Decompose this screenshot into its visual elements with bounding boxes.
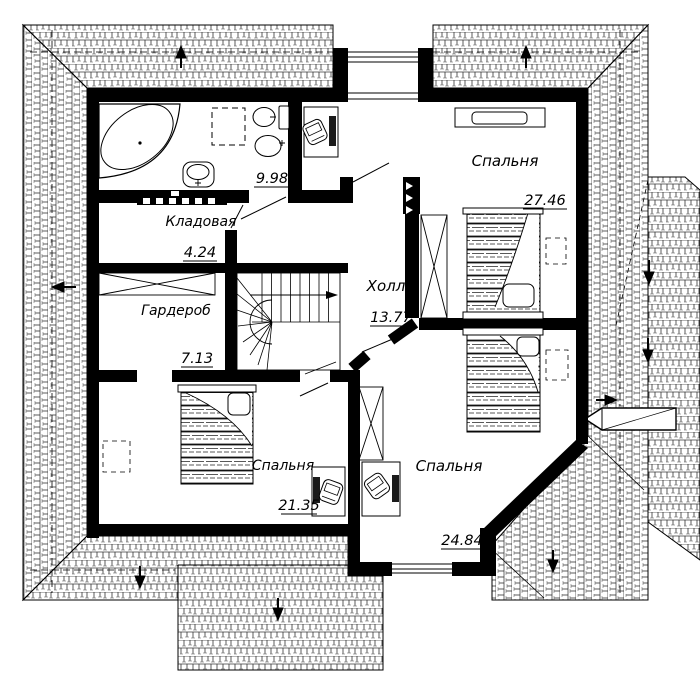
wall-hall-diag-b xyxy=(352,355,367,368)
roof-right-extension-plane xyxy=(648,177,700,560)
toilet xyxy=(253,106,289,129)
wall-hall-right xyxy=(405,214,419,318)
balcony-pier-left xyxy=(333,48,348,102)
vent-shaft xyxy=(403,177,420,214)
balcony-door-window xyxy=(348,93,418,99)
roof-left-plane xyxy=(23,25,87,600)
wall-storage-divider xyxy=(87,263,348,273)
floor-plan-svg: Спальня 27.46 Холл 13.77 9.98 Кладовая 4… xyxy=(0,0,700,688)
corner-bathtub xyxy=(89,91,186,182)
nightstand-dashed-top xyxy=(546,238,566,264)
wall-top-left xyxy=(87,88,333,102)
bed-bedroom-right xyxy=(463,328,543,432)
stair-direction-arrow xyxy=(250,291,338,299)
bed-bedroom-top xyxy=(463,208,543,319)
room-area-bedroom-right: 24.84 xyxy=(441,533,483,549)
door-leaf-corridor xyxy=(353,163,389,182)
wall-bath-bottom-b xyxy=(227,190,249,203)
dresser xyxy=(455,108,545,127)
wall-bathroom-right xyxy=(288,102,302,190)
desk-corridor xyxy=(301,107,338,157)
wall-bath-bottom-c xyxy=(288,190,340,203)
stair-treads-winders xyxy=(237,278,272,370)
room-label-bedroom-right: Спальня xyxy=(416,457,483,475)
door-leaf-bedroom-right xyxy=(362,338,395,352)
room-label-bedroom-top: Спальня xyxy=(472,152,539,170)
wall-left xyxy=(87,88,99,538)
wall-corridor-stub xyxy=(340,177,353,203)
wall-bottom-left xyxy=(87,524,348,536)
desk-bedroom-right xyxy=(362,462,400,516)
wall-bath-bottom-a xyxy=(87,190,137,203)
wall-top-right xyxy=(433,88,588,102)
bidet xyxy=(255,136,285,157)
wardrobe-cabinet-bedroom-top xyxy=(421,215,447,318)
balcony-pier-right xyxy=(418,48,433,102)
wall-right-lower xyxy=(576,330,588,444)
wall-wardrobe-right xyxy=(225,273,237,370)
room-area-bedroom-top: 27.46 xyxy=(524,193,566,209)
room-label-bedroom-left: Спальня xyxy=(252,458,314,474)
wardrobe-cabinet-bedroom-right xyxy=(359,387,383,460)
room-label-wardrobe: Гардероб xyxy=(141,303,211,319)
wall-bedroom-left-top-b xyxy=(172,370,230,382)
room-area-storage: 4.24 xyxy=(184,245,216,261)
nightstand-dashed-right xyxy=(546,350,568,380)
room-label-hall: Холл xyxy=(366,277,406,295)
room-area-bathroom: 9.98 xyxy=(256,171,288,187)
room-area-wardrobe: 7.13 xyxy=(181,351,213,367)
wall-bottom-right-b xyxy=(452,562,496,576)
wall-storage-right xyxy=(225,230,237,273)
dresser-dashed-left xyxy=(103,441,130,472)
bed-bedroom-left xyxy=(178,385,256,484)
wall-right-upper xyxy=(576,88,588,330)
chimney-vent xyxy=(585,408,676,430)
staircase xyxy=(237,273,340,374)
wall-bedroom-left-top-c xyxy=(230,370,300,382)
sink xyxy=(183,162,214,187)
shower-dashed xyxy=(212,108,245,145)
wall-bedrooms-divider-vertical xyxy=(348,370,360,576)
bottom-window xyxy=(392,564,452,573)
door-leaf-bedroom-left xyxy=(300,383,328,396)
wall-bedroom-left-top-d xyxy=(330,370,348,382)
floor-plan-page: Спальня 27.46 Холл 13.77 9.98 Кладовая 4… xyxy=(0,0,700,688)
room-area-hall: 13.77 xyxy=(370,310,412,326)
wardrobe-cabinet-garderob xyxy=(99,273,215,295)
room-label-storage: Кладовая xyxy=(166,214,237,230)
wall-bedroom-left-top-a xyxy=(87,370,137,382)
room-area-bedroom-left: 21.35 xyxy=(278,498,320,514)
knee-wall-hatched xyxy=(137,190,227,205)
roof-bottom-plane-with-dormer xyxy=(23,536,383,670)
balcony-railing xyxy=(348,52,418,62)
